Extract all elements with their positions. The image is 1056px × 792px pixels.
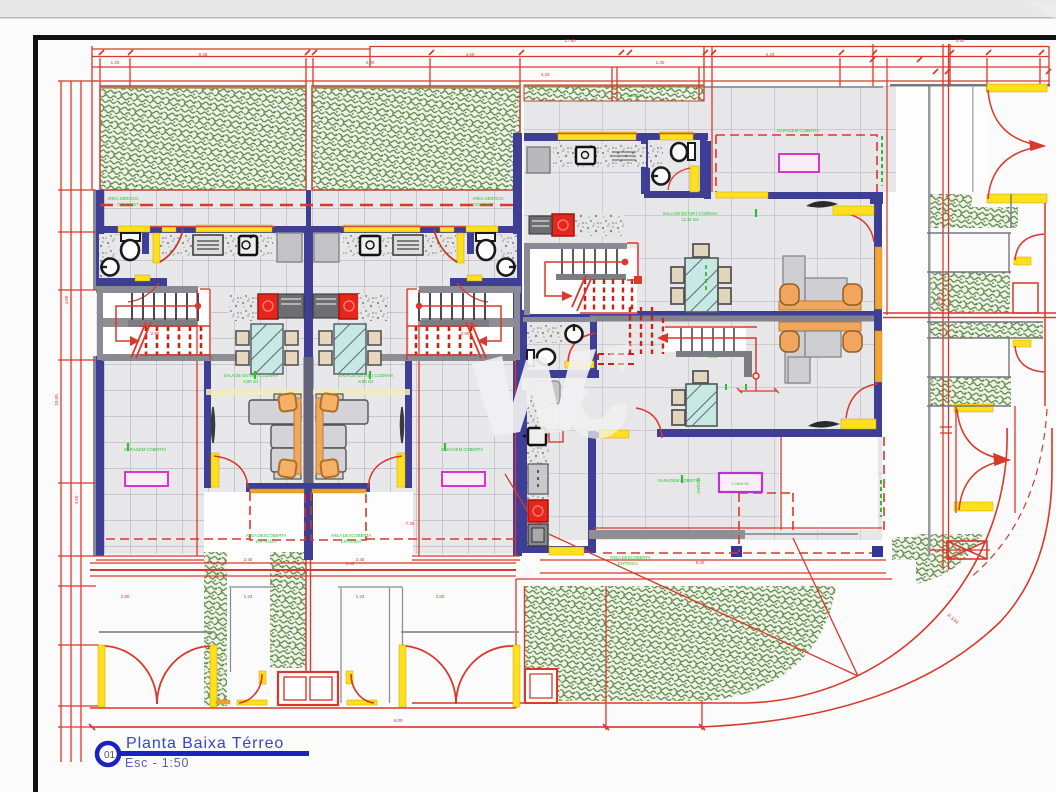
svg-text:2.45: 2.45: [244, 557, 253, 562]
svg-text:1.00: 1.00: [709, 354, 718, 359]
svg-text:SALA DE ESTAR | COZINHA: SALA DE ESTAR | COZINHA: [663, 211, 718, 216]
svg-text:JARDIM: JARDIM: [627, 93, 644, 98]
svg-text:4.50: 4.50: [74, 495, 79, 504]
svg-text:8.40: 8.40: [696, 560, 705, 565]
svg-text:2.05x5.00: 2.05x5.00: [731, 481, 749, 486]
svg-text:8.45: 8.45: [199, 52, 208, 57]
svg-text:1.20: 1.20: [111, 60, 120, 65]
svg-text:8.40: 8.40: [346, 561, 355, 566]
svg-text:AREA SERVICO: AREA SERVICO: [472, 196, 504, 201]
svg-text:GARAGEM COBERTA: GARAGEM COBERTA: [441, 447, 484, 452]
svg-text:2.80: 2.80: [461, 331, 470, 336]
svg-text:8.80 m2: 8.80 m2: [243, 379, 259, 384]
svg-text:4.60: 4.60: [466, 52, 475, 57]
svg-text:4.43: 4.43: [766, 52, 775, 57]
svg-text:6.00: 6.00: [394, 718, 403, 723]
svg-text:AREA SERVICO: AREA SERVICO: [107, 196, 139, 201]
svg-text:01: 01: [104, 750, 116, 761]
svg-text:GARAGEM COBERTA: GARAGEM COBERTA: [124, 447, 167, 452]
svg-text:ENTRADA: ENTRADA: [618, 561, 638, 566]
svg-text:8.00: 8.00: [936, 295, 941, 304]
svg-text:GOURMET: GOURMET: [472, 202, 494, 207]
svg-text:4.82: 4.82: [956, 38, 965, 43]
svg-text:4.00: 4.00: [64, 295, 69, 304]
svg-text:SALA DE ESTAR | COZINHA: SALA DE ESTAR | COZINHA: [224, 373, 279, 378]
svg-text:10.00: 10.00: [54, 394, 59, 406]
svg-text:JARDIM: JARDIM: [696, 477, 701, 494]
svg-text:GOURMET: GOURMET: [117, 202, 139, 207]
svg-text:AREA DESCOBERTA: AREA DESCOBERTA: [610, 555, 651, 560]
svg-text:2.80: 2.80: [151, 331, 160, 336]
svg-text:1.30: 1.30: [656, 60, 665, 65]
svg-text:GARAGEM COBERTA: GARAGEM COBERTA: [777, 128, 820, 133]
svg-text:2.80: 2.80: [121, 594, 130, 599]
svg-text:12.32 m2: 12.32 m2: [681, 217, 699, 222]
svg-text:Planta Baixa Térreo: Planta Baixa Térreo: [126, 735, 284, 752]
svg-text:Esc - 1:50: Esc - 1:50: [125, 756, 189, 770]
svg-text:AREA DESCOBERTA: AREA DESCOBERTA: [246, 533, 287, 538]
svg-text:2.45: 2.45: [356, 557, 365, 562]
svg-text:ENTRADA: ENTRADA: [341, 539, 361, 544]
svg-text:GARAGEM COBERTA: GARAGEM COBERTA: [658, 478, 701, 483]
svg-text:17.60: 17.60: [564, 38, 576, 43]
svg-text:1.43: 1.43: [356, 594, 365, 599]
svg-text:7.35: 7.35: [406, 521, 415, 526]
svg-text:4.90: 4.90: [366, 60, 375, 65]
svg-text:ENTRADA: ENTRADA: [256, 539, 276, 544]
svg-text:1.43: 1.43: [244, 594, 253, 599]
svg-text:SALA DE ESTAR | COZINHA: SALA DE ESTAR | COZINHA: [339, 373, 394, 378]
svg-text:AREA DESCOBERTA: AREA DESCOBERTA: [331, 533, 372, 538]
svg-text:2.80: 2.80: [436, 594, 445, 599]
svg-text:8.80 m2: 8.80 m2: [358, 379, 374, 384]
svg-text:4.43: 4.43: [541, 72, 550, 77]
